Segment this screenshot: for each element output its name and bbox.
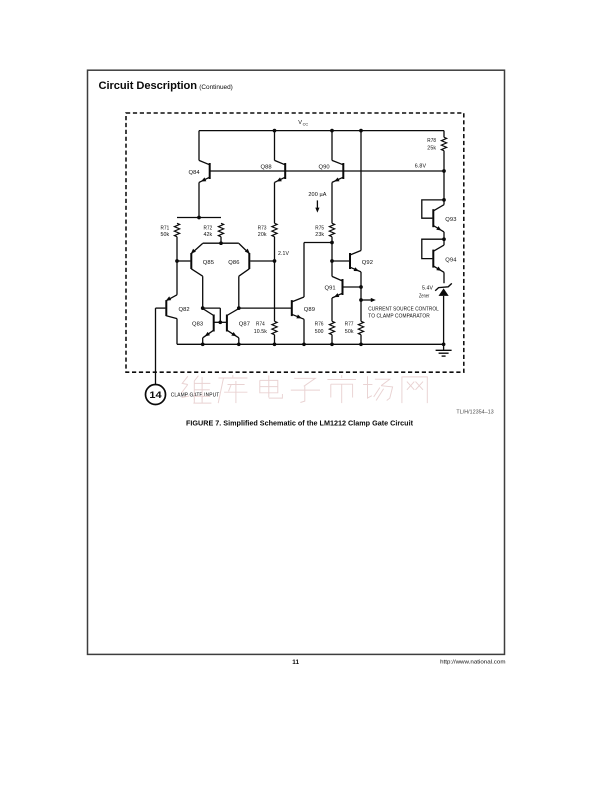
svg-text:Q94: Q94 — [445, 257, 457, 263]
svg-text:Q89: Q89 — [304, 307, 315, 313]
svg-text:Zener: Zener — [419, 294, 430, 300]
svg-text:http://www.national.com: http://www.national.com — [440, 660, 506, 666]
svg-text:R74: R74 — [256, 321, 265, 327]
svg-text:CURRENT SOURCE CONTROL: CURRENT SOURCE CONTROL — [368, 306, 439, 312]
svg-text:Q88: Q88 — [261, 164, 272, 170]
svg-text:6.8V: 6.8V — [415, 164, 426, 170]
svg-text:42k: 42k — [204, 232, 213, 238]
svg-text:14: 14 — [149, 389, 162, 400]
svg-text:2.1V: 2.1V — [278, 251, 289, 257]
svg-text:Q92: Q92 — [362, 260, 373, 266]
svg-text:R71: R71 — [161, 225, 170, 231]
svg-text:R72: R72 — [204, 225, 213, 231]
svg-text:23k: 23k — [315, 232, 324, 238]
svg-text:Q82: Q82 — [179, 307, 190, 313]
svg-text:25k: 25k — [427, 145, 436, 151]
svg-text:CC: CC — [303, 122, 309, 127]
svg-text:20k: 20k — [258, 232, 267, 238]
svg-text:R75: R75 — [315, 225, 324, 231]
svg-text:50k: 50k — [161, 232, 170, 238]
svg-text:11: 11 — [292, 659, 299, 666]
svg-text:Q83: Q83 — [192, 322, 203, 328]
svg-text:Q87: Q87 — [239, 322, 250, 328]
svg-text:R77: R77 — [345, 321, 354, 327]
svg-text:TO CLAMP COMPARATOR: TO CLAMP COMPARATOR — [368, 313, 430, 319]
svg-text:200 µA: 200 µA — [308, 192, 326, 198]
svg-text:FIGURE 7. Simplified Schematic: FIGURE 7. Simplified Schematic of the LM… — [186, 421, 414, 428]
svg-text:Q91: Q91 — [325, 286, 336, 292]
svg-text:Q90: Q90 — [319, 164, 330, 170]
svg-text:Q93: Q93 — [445, 217, 456, 223]
svg-text:Circuit Description: Circuit Description — [99, 80, 198, 92]
svg-text:TL/H/12354–13: TL/H/12354–13 — [456, 410, 493, 416]
svg-text:(Continued): (Continued) — [199, 84, 233, 91]
svg-text:50k: 50k — [345, 329, 354, 335]
svg-text:R78: R78 — [427, 138, 436, 144]
svg-text:R76: R76 — [315, 321, 324, 327]
svg-text:5.4V: 5.4V — [422, 286, 433, 292]
svg-text:500: 500 — [315, 329, 324, 335]
svg-text:Q85: Q85 — [203, 260, 214, 266]
svg-text:CLAMP GATE INPUT: CLAMP GATE INPUT — [171, 392, 220, 398]
svg-text:R73: R73 — [258, 225, 267, 231]
svg-text:10.5k: 10.5k — [254, 329, 267, 335]
svg-text:Q84: Q84 — [189, 170, 201, 176]
svg-text:Q86: Q86 — [228, 260, 239, 266]
